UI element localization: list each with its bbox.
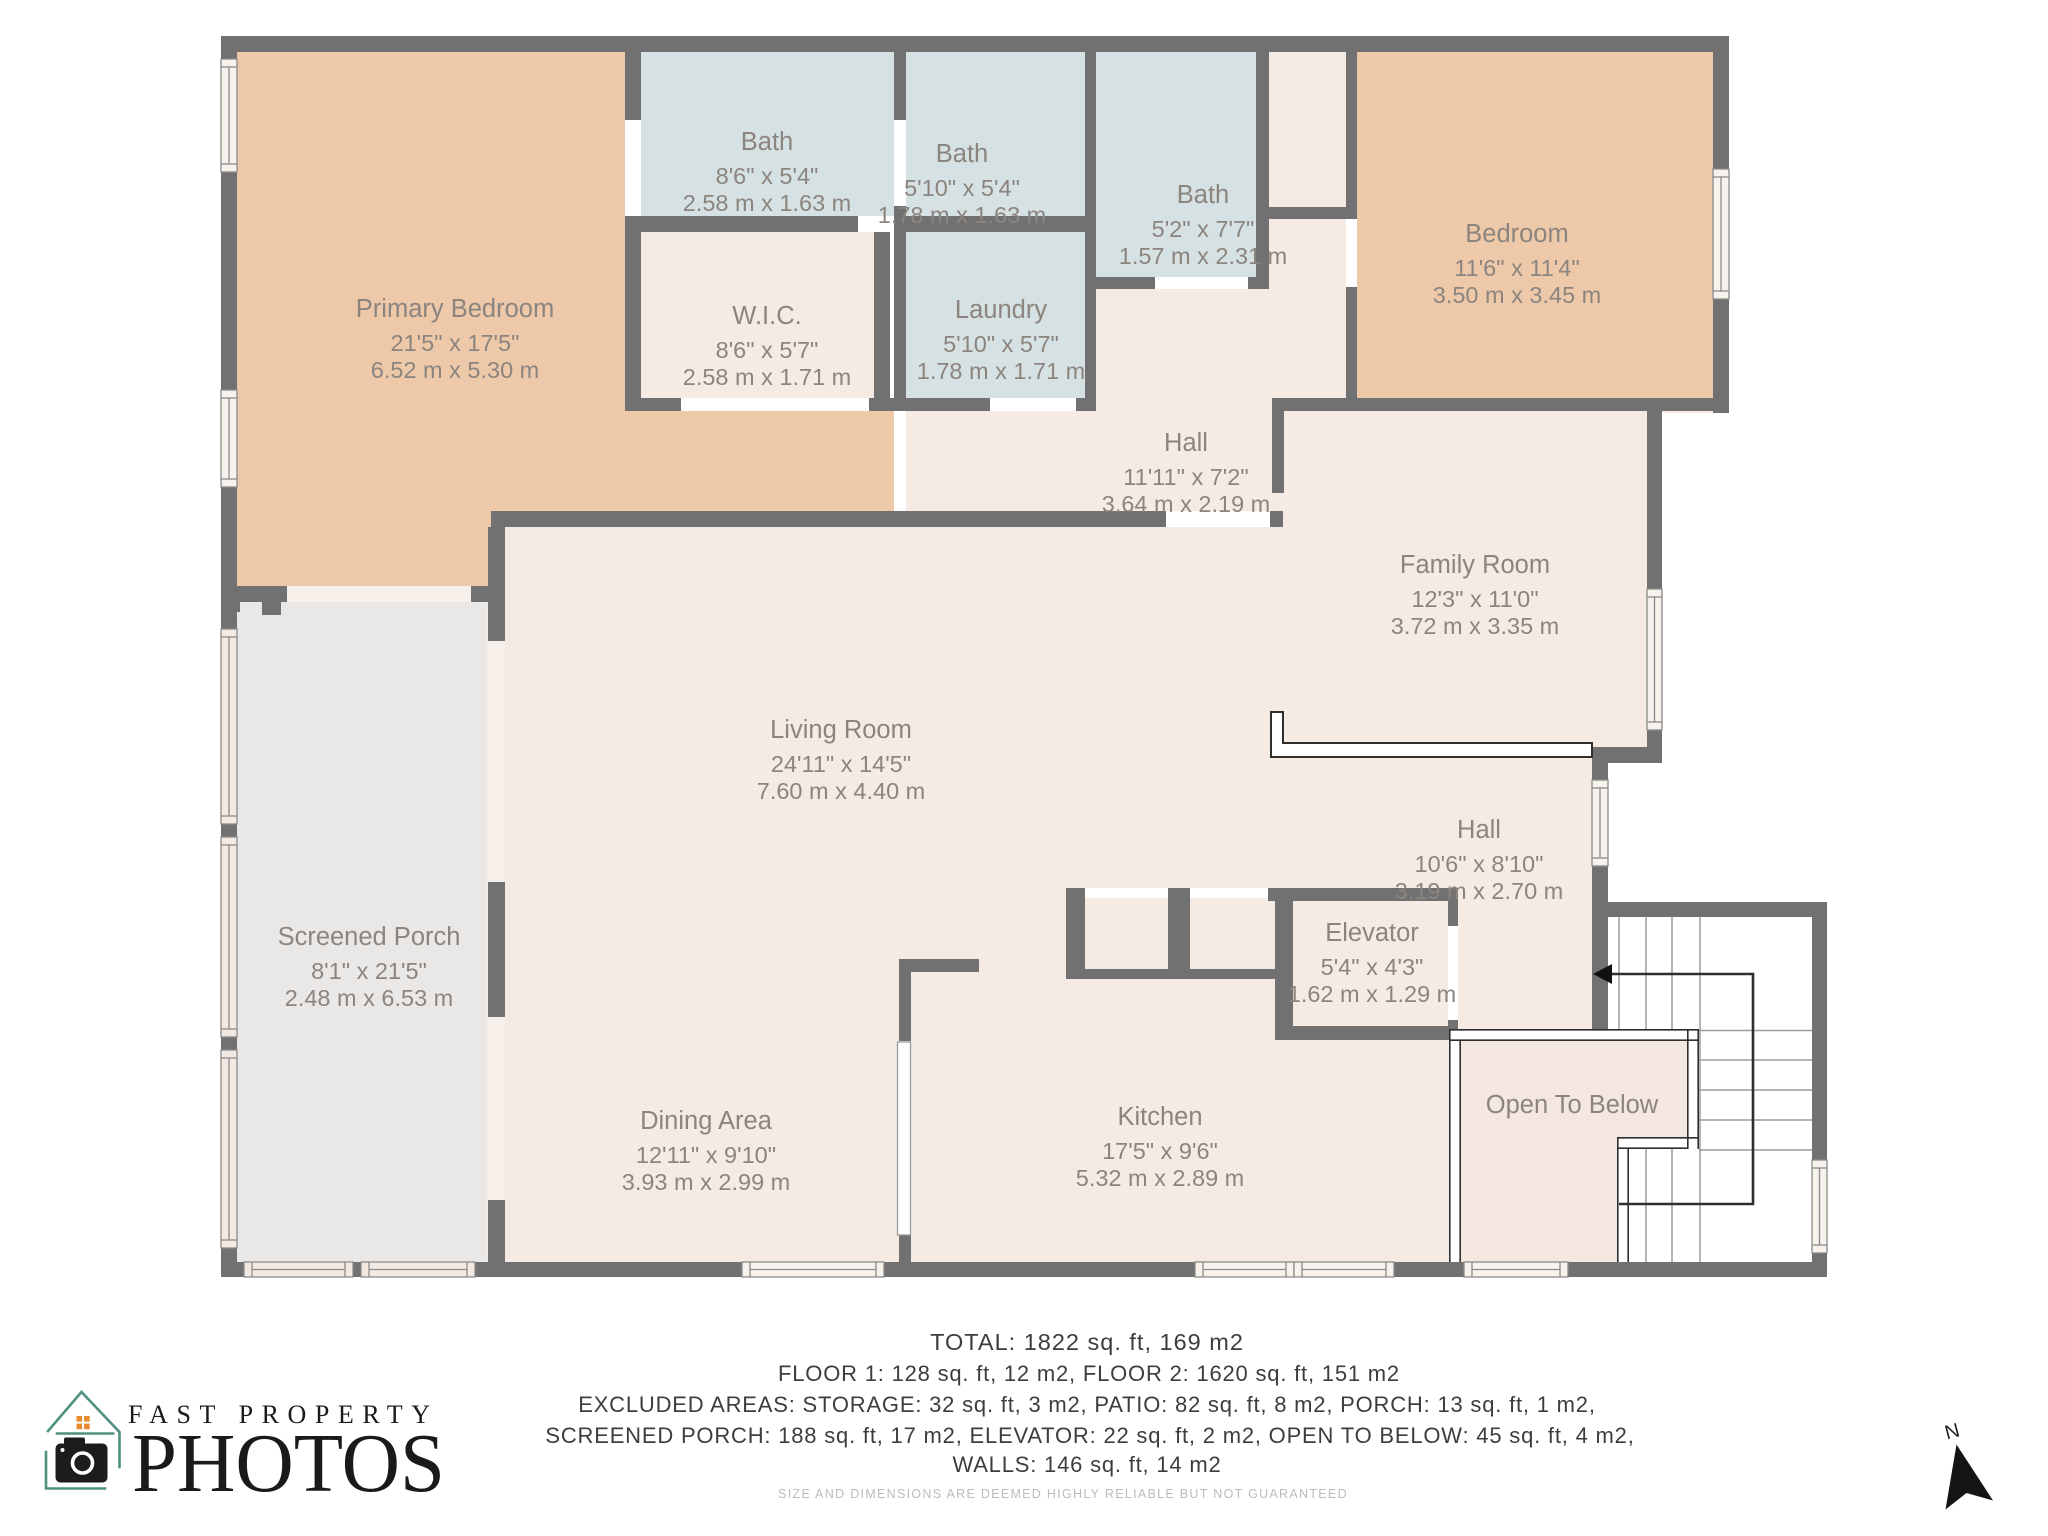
- svg-text:5'2" x 7'7": 5'2" x 7'7": [1152, 216, 1255, 242]
- svg-text:5'4" x 4'3": 5'4" x 4'3": [1321, 954, 1424, 980]
- svg-text:10'6" x 8'10": 10'6" x 8'10": [1415, 851, 1544, 877]
- svg-text:12'3" x 11'0": 12'3" x 11'0": [1411, 586, 1538, 612]
- svg-text:Dining Area: Dining Area: [640, 1107, 773, 1135]
- svg-text:Open To Below: Open To Below: [1486, 1091, 1659, 1119]
- svg-text:Bath: Bath: [1177, 181, 1229, 209]
- svg-text:Living Room: Living Room: [770, 716, 912, 744]
- svg-text:Kitchen: Kitchen: [1117, 1103, 1202, 1131]
- svg-text:8'6" x 5'4": 8'6" x 5'4": [716, 163, 819, 189]
- svg-text:1.78 m x 1.71 m: 1.78 m x 1.71 m: [917, 358, 1086, 384]
- svg-text:8'6" x 5'7": 8'6" x 5'7": [716, 337, 819, 363]
- svg-text:PHOTOS: PHOTOS: [132, 1417, 445, 1510]
- svg-text:Laundry: Laundry: [955, 296, 1047, 324]
- svg-text:6.52 m x 5.30 m: 6.52 m x 5.30 m: [371, 357, 540, 383]
- svg-text:11'6" x 11'4": 11'6" x 11'4": [1454, 255, 1579, 281]
- svg-text:Bath: Bath: [741, 128, 793, 156]
- svg-text:SIZE AND DIMENSIONS ARE DEEMED: SIZE AND DIMENSIONS ARE DEEMED HIGHLY RE…: [778, 1487, 1348, 1501]
- svg-text:1.62 m x 1.29 m: 1.62 m x 1.29 m: [1288, 981, 1457, 1007]
- svg-text:3.50 m x 3.45 m: 3.50 m x 3.45 m: [1433, 282, 1602, 308]
- svg-text:5.32 m x 2.89 m: 5.32 m x 2.89 m: [1076, 1165, 1245, 1191]
- svg-text:3.19 m x 2.70 m: 3.19 m x 2.70 m: [1395, 878, 1564, 904]
- svg-text:Bedroom: Bedroom: [1465, 220, 1568, 248]
- svg-text:8'1" x 21'5": 8'1" x 21'5": [311, 958, 427, 984]
- svg-text:W.I.C.: W.I.C.: [732, 302, 801, 330]
- svg-text:21'5" x 17'5": 21'5" x 17'5": [391, 330, 520, 356]
- svg-text:12'11" x 9'10": 12'11" x 9'10": [636, 1142, 776, 1168]
- svg-text:FLOOR 1: 128 sq. ft, 12 m2, FL: FLOOR 1: 128 sq. ft, 12 m2, FLOOR 2: 162…: [778, 1361, 1400, 1386]
- svg-text:EXCLUDED AREAS: STORAGE: 32 sq: EXCLUDED AREAS: STORAGE: 32 sq. ft, 3 m2…: [578, 1392, 1596, 1417]
- svg-text:3.64 m x 2.19 m: 3.64 m x 2.19 m: [1102, 491, 1271, 517]
- svg-text:11'11" x 7'2": 11'11" x 7'2": [1123, 464, 1248, 490]
- svg-text:2.58 m x 1.71 m: 2.58 m x 1.71 m: [683, 364, 852, 390]
- svg-text:Elevator: Elevator: [1325, 919, 1419, 947]
- svg-text:2.48 m x 6.53 m: 2.48 m x 6.53 m: [285, 985, 454, 1011]
- svg-text:17'5" x 9'6": 17'5" x 9'6": [1102, 1138, 1218, 1164]
- svg-text:5'10" x 5'4": 5'10" x 5'4": [904, 175, 1020, 201]
- svg-text:2.58 m x 1.63 m: 2.58 m x 1.63 m: [683, 190, 852, 216]
- svg-text:TOTAL: 1822 sq. ft, 169 m2: TOTAL: 1822 sq. ft, 169 m2: [930, 1329, 1244, 1355]
- svg-text:Family Room: Family Room: [1400, 551, 1550, 579]
- svg-text:Primary Bedroom: Primary Bedroom: [356, 295, 554, 323]
- svg-text:1.78 m x 1.63 m: 1.78 m x 1.63 m: [878, 202, 1047, 228]
- svg-text:3.93 m x 2.99 m: 3.93 m x 2.99 m: [622, 1169, 791, 1195]
- svg-text:3.72 m x 3.35 m: 3.72 m x 3.35 m: [1391, 613, 1560, 639]
- svg-text:Bath: Bath: [936, 140, 988, 168]
- svg-text:WALLS: 146 sq. ft, 14 m2: WALLS: 146 sq. ft, 14 m2: [952, 1452, 1221, 1477]
- svg-text:24'11" x 14'5": 24'11" x 14'5": [771, 751, 911, 777]
- svg-text:1.57 m x 2.31 m: 1.57 m x 2.31 m: [1119, 243, 1288, 269]
- svg-text:SCREENED PORCH: 188 sq. ft, 17: SCREENED PORCH: 188 sq. ft, 17 m2, ELEVA…: [545, 1423, 1634, 1448]
- svg-text:5'10" x 5'7": 5'10" x 5'7": [943, 331, 1059, 357]
- svg-text:Hall: Hall: [1164, 429, 1208, 457]
- svg-text:Screened Porch: Screened Porch: [278, 923, 461, 951]
- svg-text:7.60 m x 4.40 m: 7.60 m x 4.40 m: [757, 778, 926, 804]
- svg-text:Hall: Hall: [1457, 816, 1501, 844]
